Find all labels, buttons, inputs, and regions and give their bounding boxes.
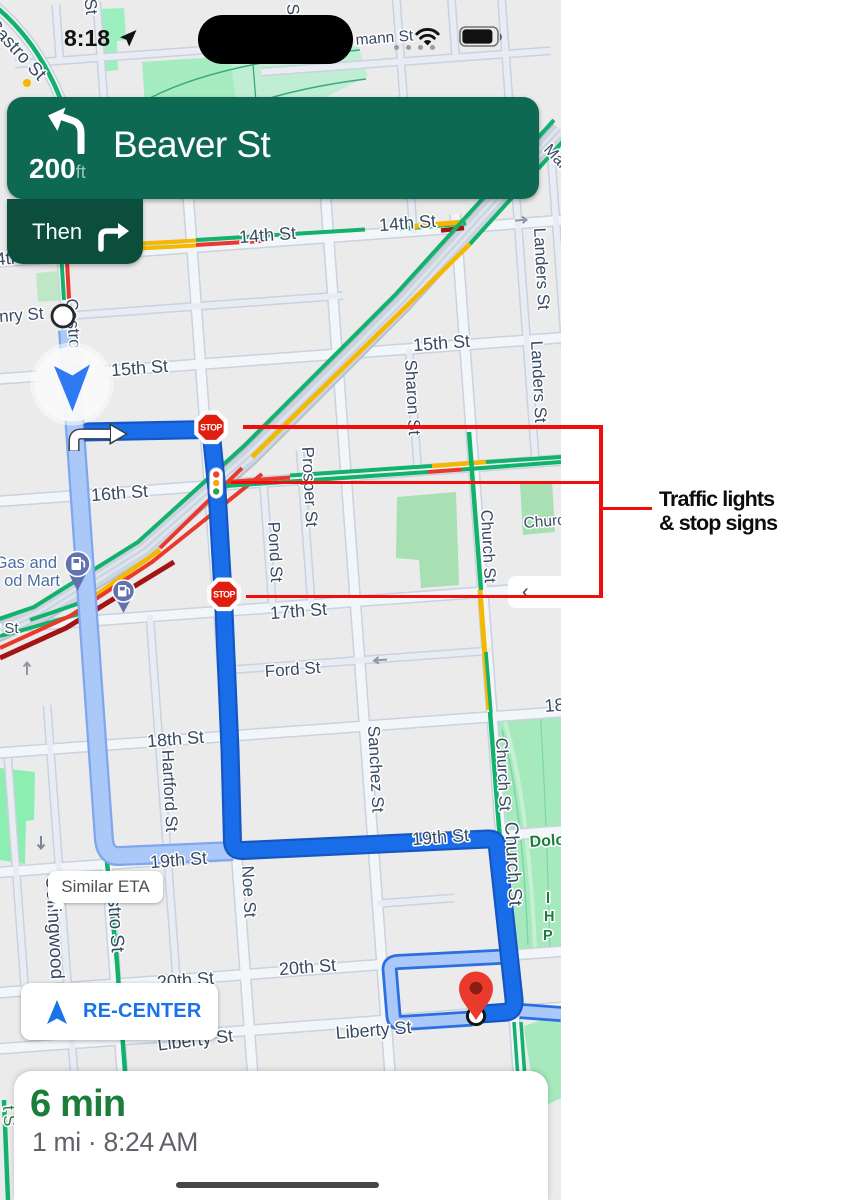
svg-text:Noe St: Noe St: [238, 865, 260, 918]
svg-text:Gas and: Gas and: [0, 554, 57, 572]
svg-text:Churc: Churc: [523, 512, 561, 532]
svg-text:STOP: STOP: [213, 590, 235, 600]
svg-text:STOP: STOP: [200, 423, 222, 433]
svg-text:P: P: [543, 928, 553, 944]
svg-text:18th St: 18th St: [544, 692, 561, 716]
svg-text:Pond St: Pond St: [264, 521, 286, 583]
svg-text:stro St: stro St: [103, 897, 128, 954]
svg-text:t St: t St: [0, 620, 19, 637]
svg-text:od Mart: od Mart: [4, 572, 60, 590]
svg-text:Church St: Church St: [477, 509, 499, 584]
svg-text:S: S: [283, 3, 303, 16]
svg-text:l: l: [546, 891, 550, 907]
svg-text:Church St: Church St: [492, 737, 514, 812]
svg-text:Dolores: Dolores: [529, 830, 561, 851]
svg-text:H: H: [544, 909, 554, 925]
svg-text:Church St: Church St: [500, 821, 525, 907]
